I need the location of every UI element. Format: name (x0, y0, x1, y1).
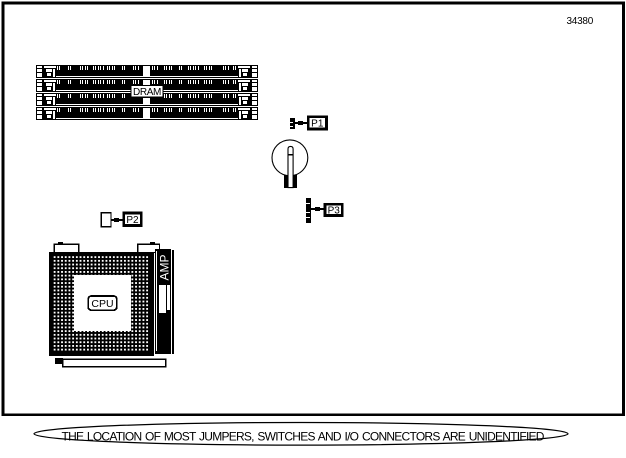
svg-text:AMP: AMP (157, 254, 171, 280)
svg-text:P3: P3 (328, 205, 341, 216)
svg-text:THE LOCATION OF MOST JUMPERS,: THE LOCATION OF MOST JUMPERS, SWITCHES A… (61, 429, 544, 443)
svg-text:P1: P1 (311, 118, 324, 129)
svg-text:CPU: CPU (91, 298, 113, 310)
svg-text:DRAM: DRAM (133, 87, 161, 98)
svg-text:34380: 34380 (567, 16, 594, 27)
svg-text:P2: P2 (126, 215, 139, 226)
